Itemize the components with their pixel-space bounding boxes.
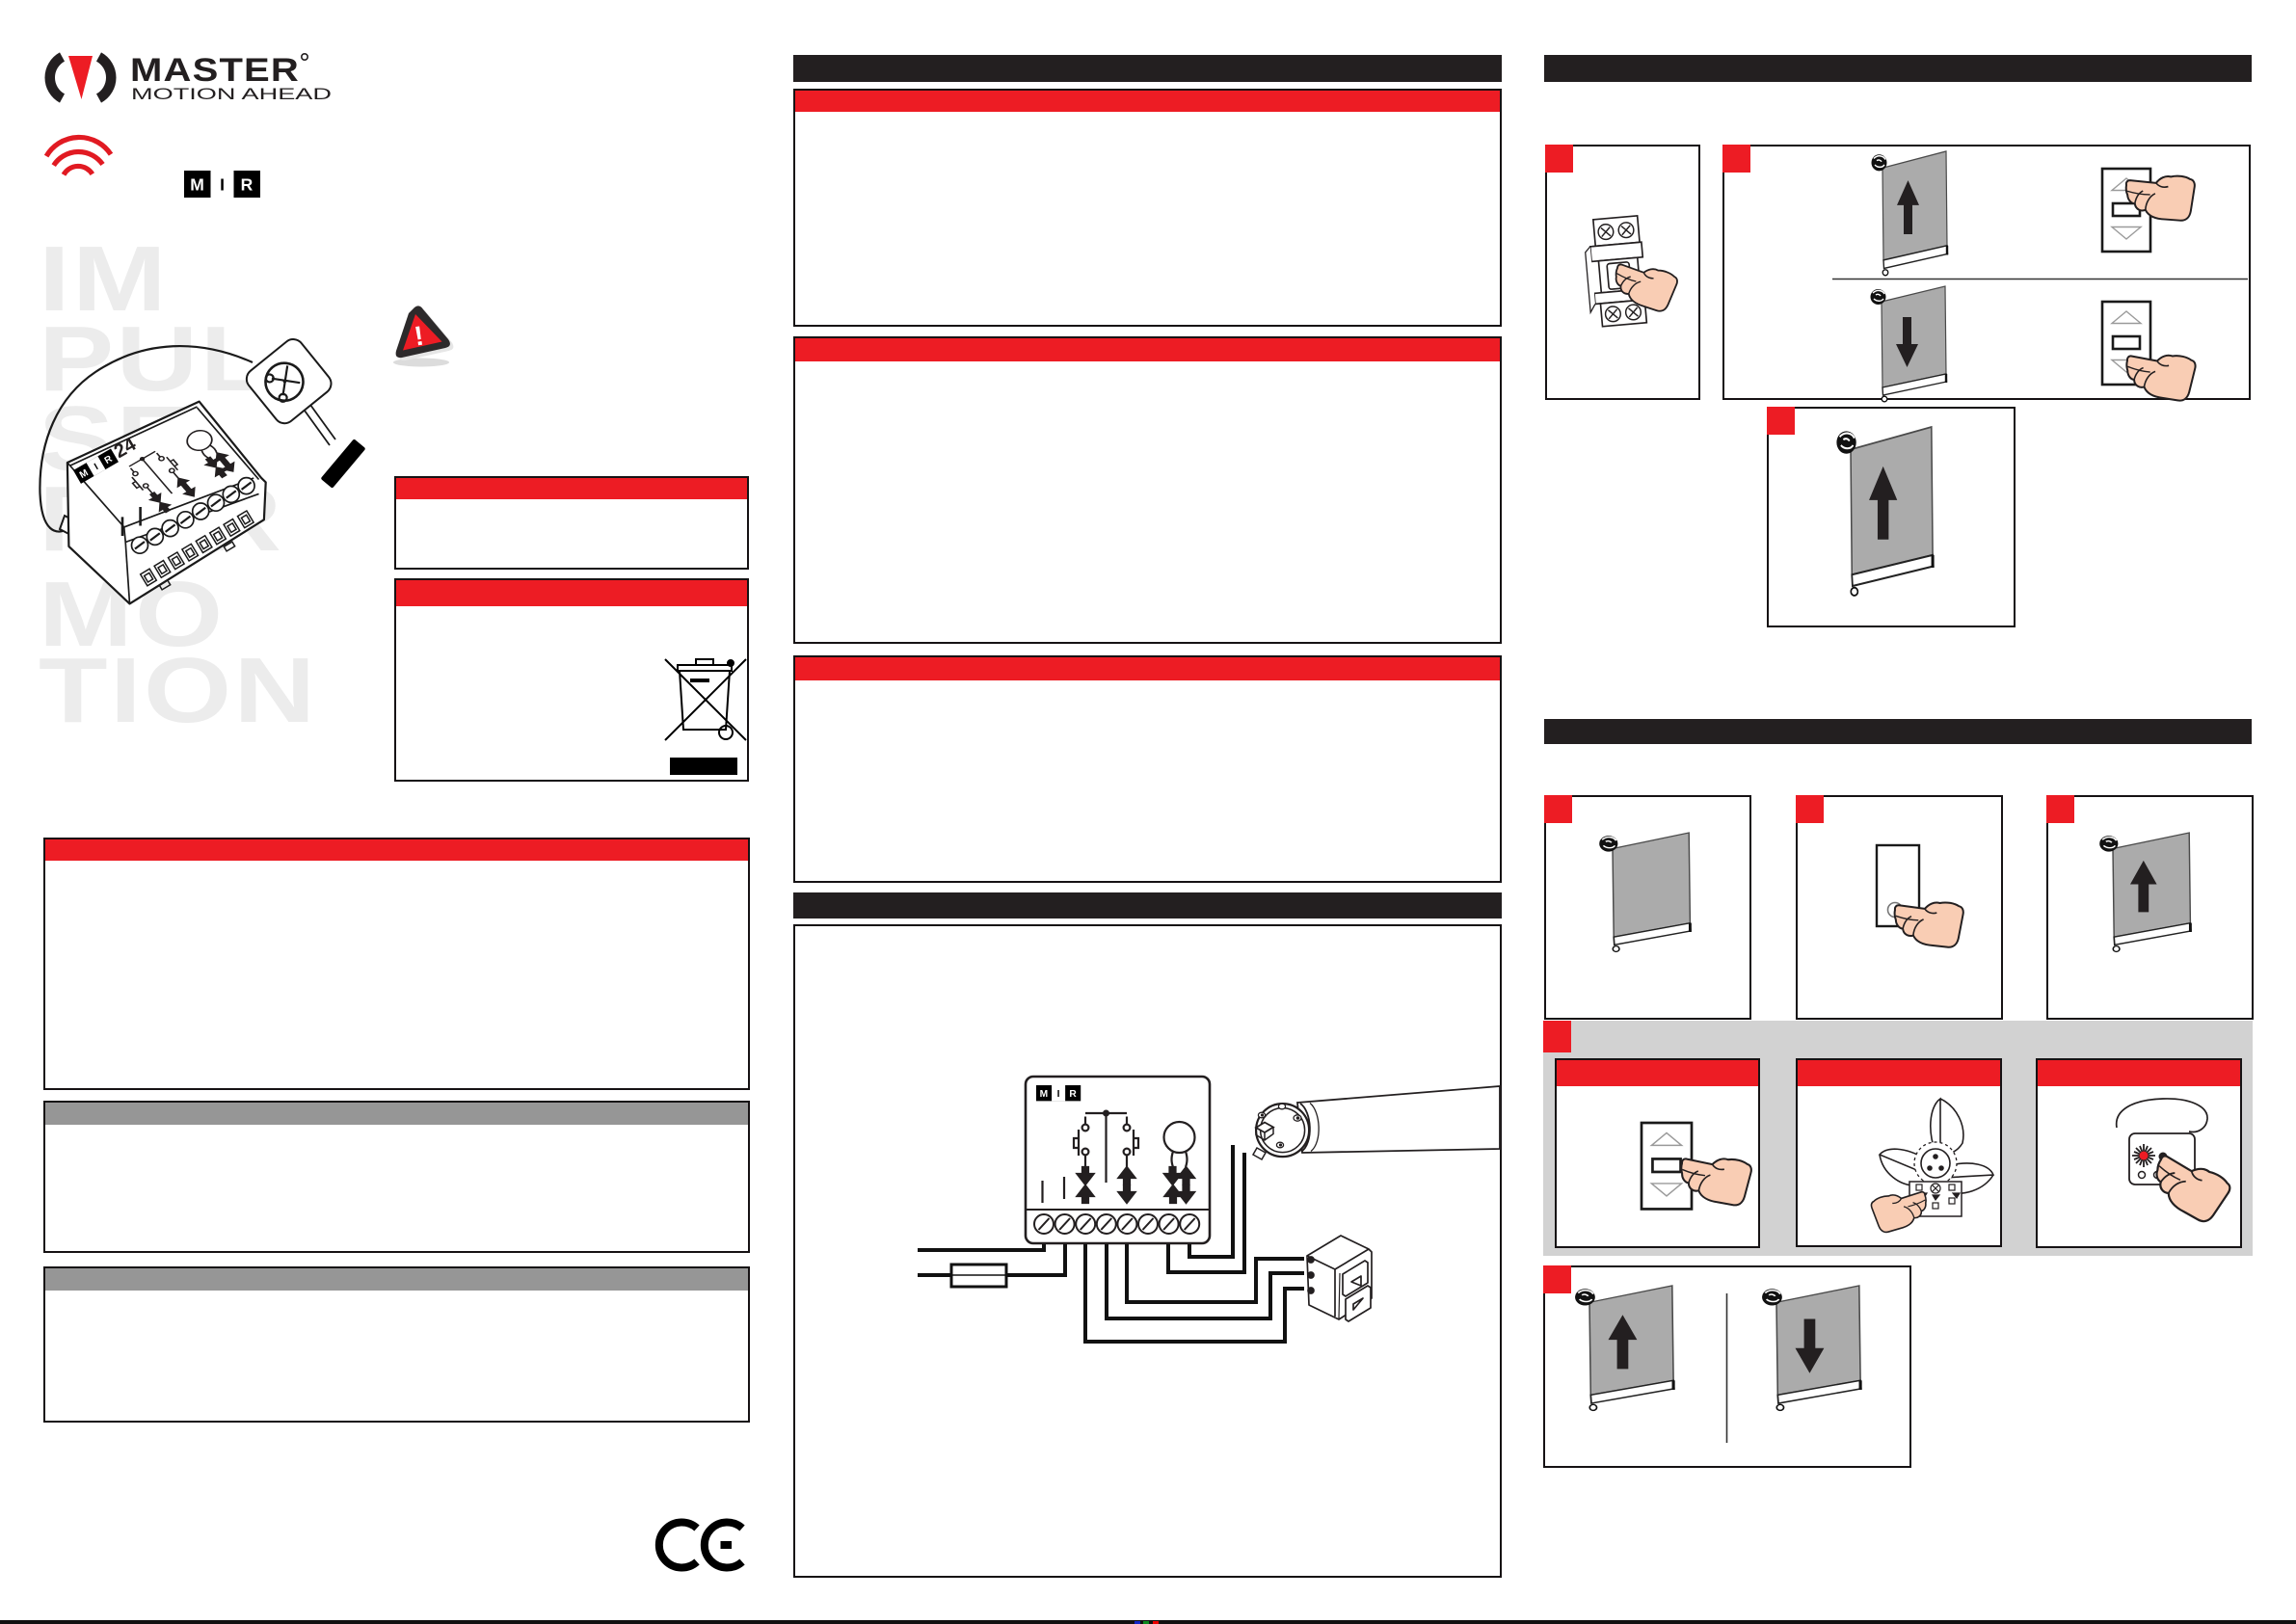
svg-text:MOTION AHEAD: MOTION AHEAD [131,85,332,103]
svg-text:MASTER: MASTER [130,52,300,89]
